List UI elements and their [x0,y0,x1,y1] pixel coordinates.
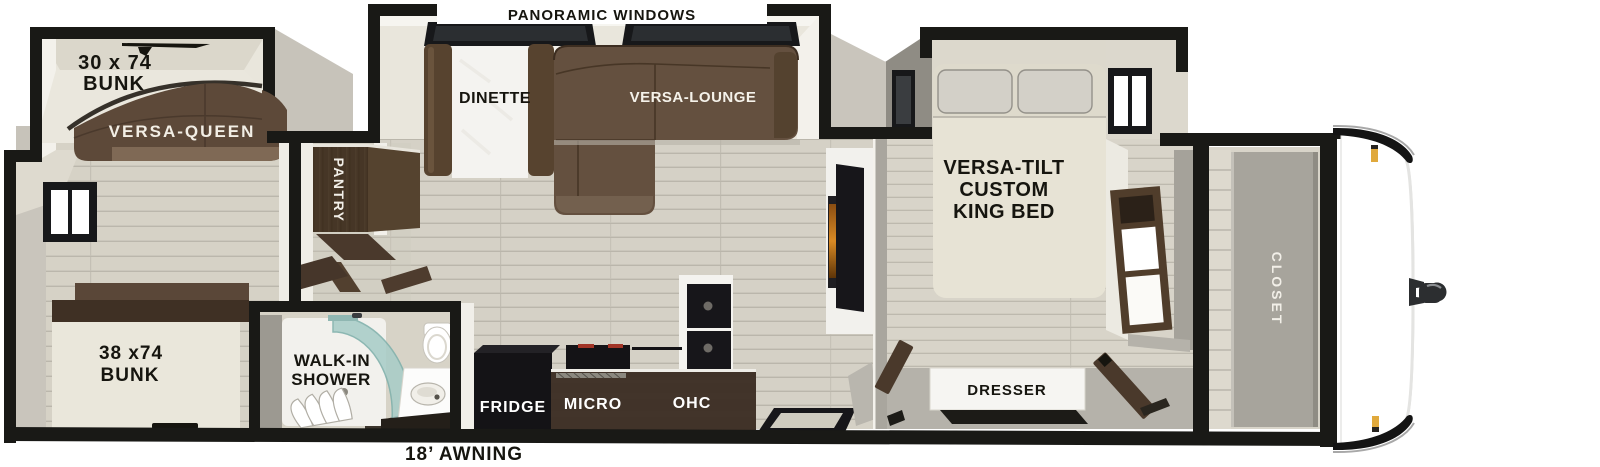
svg-text:DINETTE: DINETTE [459,90,531,107]
svg-text:FRIDGE: FRIDGE [480,399,546,416]
svg-text:VERSA-LOUNGE: VERSA-LOUNGE [630,89,757,106]
svg-text:38 x74: 38 x74 [99,343,163,364]
svg-text:BUNK: BUNK [101,365,160,386]
svg-text:DRESSER: DRESSER [967,382,1047,399]
svg-text:WALK-IN: WALK-IN [294,351,370,370]
svg-text:CLOSET: CLOSET [1269,252,1285,327]
svg-text:VERSA-QUEEN: VERSA-QUEEN [109,122,256,141]
svg-text:30 x 74: 30 x 74 [78,52,152,74]
svg-text:SHOWER: SHOWER [291,370,371,389]
svg-text:MICRO: MICRO [564,396,622,413]
svg-text:OHC: OHC [673,395,712,412]
svg-text:PANORAMIC WINDOWS: PANORAMIC WINDOWS [508,7,696,24]
svg-text:CUSTOM: CUSTOM [959,179,1048,201]
svg-text:BUNK: BUNK [83,73,145,95]
svg-text:VERSA-TILT: VERSA-TILT [943,157,1064,179]
svg-text:KING BED: KING BED [953,201,1055,223]
svg-text:PANTRY: PANTRY [331,158,347,223]
svg-text:18’ AWNING: 18’ AWNING [405,444,523,465]
